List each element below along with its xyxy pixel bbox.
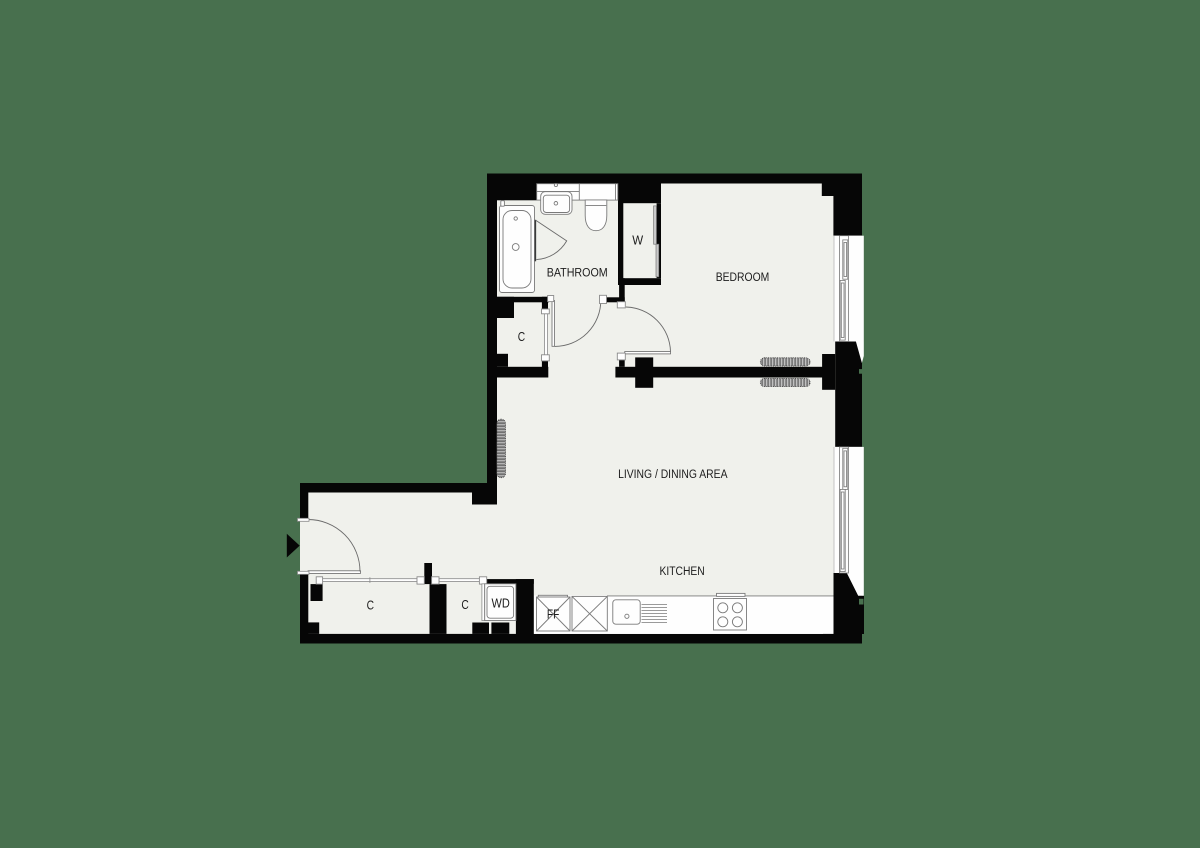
svg-text:KITCHEN: KITCHEN [660, 564, 705, 578]
svg-text:W: W [632, 233, 643, 247]
svg-text:FF: FF [547, 608, 560, 622]
svg-text:C: C [518, 330, 525, 344]
svg-text:BATHROOM: BATHROOM [547, 265, 608, 279]
svg-text:C: C [461, 598, 468, 612]
svg-text:C: C [367, 599, 374, 613]
svg-text:LIVING / DINING AREA: LIVING / DINING AREA [618, 467, 728, 481]
svg-text:BEDROOM: BEDROOM [716, 270, 770, 284]
svg-text:WD: WD [492, 597, 510, 611]
